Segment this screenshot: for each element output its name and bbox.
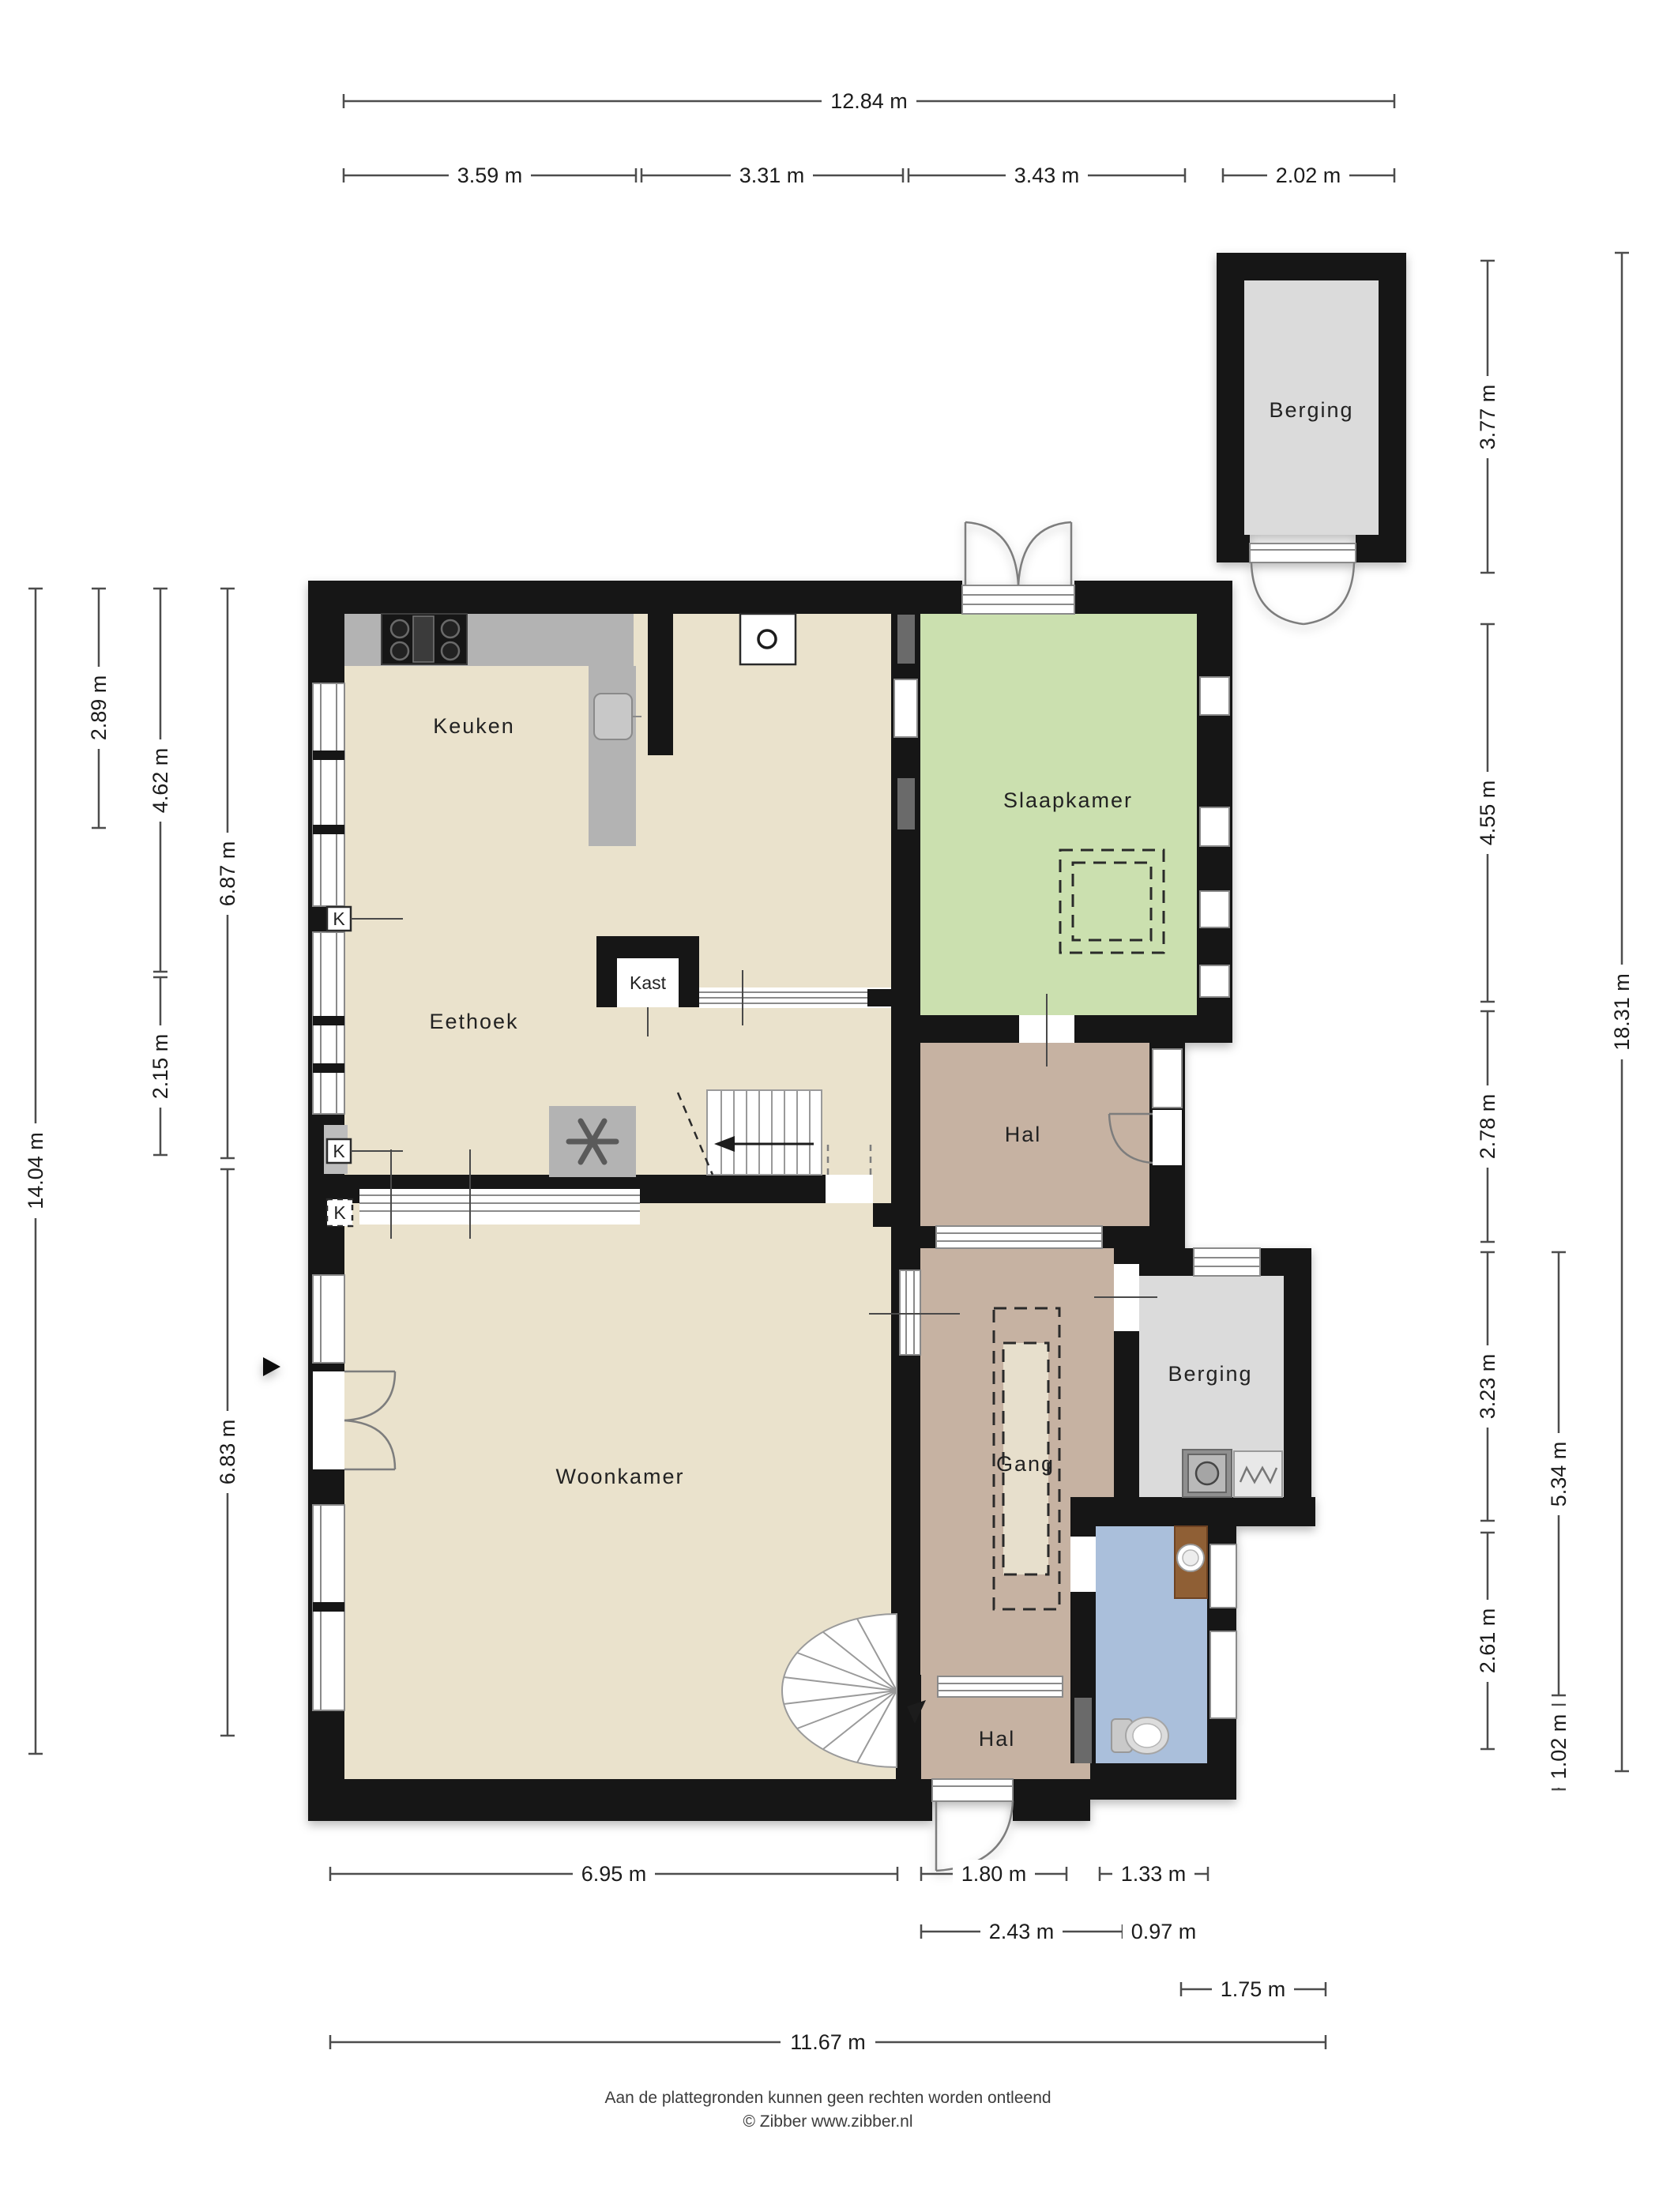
basin-icon — [1175, 1526, 1207, 1598]
toilet-icon — [1112, 1717, 1168, 1754]
svg-text:1.75 m: 1.75 m — [1221, 1977, 1286, 2001]
room-label-keuken: Keuken — [433, 714, 515, 738]
dim-right-seg: 3.77 m — [1475, 261, 1502, 573]
floor-slaapkamer — [920, 614, 1197, 1015]
dim-top-total: 12.84 m — [344, 87, 1394, 114]
k-marker-label: K — [333, 908, 345, 929]
dim-bottom-seg: 1.75 m — [1181, 1975, 1326, 2002]
svg-text:3.59 m: 3.59 m — [457, 164, 523, 187]
svg-text:2.89 m: 2.89 m — [87, 675, 111, 741]
svg-text:1.02 m: 1.02 m — [1547, 1714, 1571, 1780]
dim-left-total: 14.04 m — [23, 589, 50, 1754]
svg-text:14.04 m: 14.04 m — [24, 1132, 47, 1209]
k-marker-label: K — [333, 1141, 345, 1161]
window — [1210, 1544, 1236, 1608]
svg-text:1.33 m: 1.33 m — [1121, 1862, 1187, 1886]
boiler-icon — [740, 614, 796, 664]
front-door — [932, 1779, 1013, 1871]
dim-bottom-seg: 2.43 m — [921, 1917, 1123, 1944]
dim-left-seg: 2.15 m — [148, 977, 175, 1155]
room-label-eethoek: Eethoek — [429, 1010, 518, 1033]
room-label-gang: Gang — [996, 1452, 1055, 1476]
svg-text:1.80 m: 1.80 m — [961, 1862, 1027, 1886]
dim-top-seg: 3.59 m — [344, 161, 636, 188]
room-label-hal-onder: Hal — [979, 1727, 1016, 1751]
svg-text:2.78 m: 2.78 m — [1476, 1094, 1499, 1160]
plan: K K K Keuken Eethoek Woonkamer Slaapkame… — [263, 253, 1406, 1871]
room-label-berging-rechts: Berging — [1168, 1362, 1252, 1386]
svg-text:3.31 m: 3.31 m — [739, 164, 805, 187]
dim-bottom-total: 11.67 m — [330, 2028, 1326, 2055]
dim-top-seg: 2.02 m — [1223, 161, 1394, 188]
glass-partition — [936, 1226, 1102, 1248]
svg-text:3.77 m: 3.77 m — [1476, 385, 1499, 450]
room-label-berging-boven: Berging — [1269, 398, 1353, 422]
window — [1210, 1631, 1236, 1718]
svg-text:6.95 m: 6.95 m — [581, 1862, 647, 1886]
wall-niche — [1074, 1698, 1092, 1763]
dim-top-seg: 3.43 m — [908, 161, 1185, 188]
dim-bottom-seg: 6.95 m — [330, 1860, 897, 1887]
footer: Aan de plattegronden kunnen geen rechten… — [604, 2089, 1051, 2131]
window — [1200, 807, 1229, 846]
door-opening — [1070, 1537, 1096, 1592]
fireplace-icon — [549, 1106, 636, 1177]
room-label-kast: Kast — [630, 972, 667, 993]
dim-top-seg: 3.31 m — [641, 161, 903, 188]
svg-text:3.43 m: 3.43 m — [1014, 164, 1080, 187]
washer-icon — [1183, 1450, 1232, 1497]
room-label-woonkamer: Woonkamer — [555, 1465, 684, 1488]
dim-left-seg: 6.87 m — [215, 589, 242, 1158]
dim-bottom-seg: 1.80 m — [921, 1860, 1066, 1887]
k-marker: K — [327, 1199, 352, 1226]
dim-right-seg: 2.61 m — [1475, 1533, 1502, 1749]
svg-text:18.31 m: 18.31 m — [1610, 973, 1634, 1051]
svg-text:2.43 m: 2.43 m — [989, 1920, 1055, 1943]
dim-left-seg: 4.62 m — [148, 589, 175, 972]
svg-text:6.87 m: 6.87 m — [216, 841, 239, 907]
k-marker-label: K — [333, 1202, 346, 1223]
dim-bottom-seg: 0.97 m — [1123, 1917, 1205, 1944]
window — [894, 679, 917, 737]
window — [1200, 677, 1229, 715]
svg-text:0.97 m: 0.97 m — [1131, 1920, 1197, 1943]
dim-right-seg: 1.02 m — [1546, 1705, 1573, 1789]
wall-niche — [897, 778, 915, 829]
window — [313, 932, 344, 1114]
glass-partition — [938, 1676, 1063, 1697]
window — [313, 683, 344, 906]
dim-right-seg: 4.55 m — [1475, 624, 1502, 1002]
svg-text:4.62 m: 4.62 m — [149, 748, 172, 814]
dim-right-seg: 2.78 m — [1475, 1011, 1502, 1242]
svg-text:4.55 m: 4.55 m — [1476, 781, 1499, 846]
svg-text:2.15 m: 2.15 m — [149, 1034, 172, 1100]
window — [313, 1505, 344, 1710]
wall-niche — [897, 615, 915, 664]
dim-left-seg: 6.83 m — [215, 1169, 242, 1736]
window — [1194, 1248, 1260, 1276]
stove-icon — [382, 614, 467, 664]
window — [1200, 965, 1229, 997]
svg-text:11.67 m: 11.67 m — [790, 2030, 866, 2054]
window — [1153, 1049, 1182, 1108]
svg-text:2.02 m: 2.02 m — [1276, 164, 1341, 187]
svg-text:2.61 m: 2.61 m — [1476, 1608, 1499, 1674]
footer-disclaimer: Aan de plattegronden kunnen geen rechten… — [604, 2089, 1051, 2107]
svg-text:6.83 m: 6.83 m — [216, 1420, 239, 1485]
entrance-double-door — [962, 522, 1074, 614]
garage-double-door — [1250, 544, 1356, 624]
window — [1200, 891, 1229, 927]
dim-bottom-seg: 1.33 m — [1100, 1860, 1208, 1887]
footer-credit: © Zibber www.zibber.nl — [743, 2112, 912, 2131]
floorplan-canvas: K K K Keuken Eethoek Woonkamer Slaapkame… — [0, 0, 1659, 2212]
svg-text:5.34 m: 5.34 m — [1547, 1442, 1571, 1507]
dim-right-seg: 5.34 m — [1546, 1252, 1573, 1695]
dim-right-total: 18.31 m — [1609, 253, 1636, 1771]
room-label-hal-boven: Hal — [1005, 1123, 1042, 1146]
window — [313, 1275, 344, 1363]
svg-text:12.84 m: 12.84 m — [830, 89, 908, 113]
room-label-slaapkamer: Slaapkamer — [1003, 788, 1133, 812]
camera-marker — [263, 1357, 280, 1376]
svg-text:3.23 m: 3.23 m — [1476, 1354, 1499, 1420]
laundry-basket-icon — [1234, 1451, 1282, 1497]
dim-left-seg: 2.89 m — [86, 589, 113, 828]
dim-right-seg: 3.23 m — [1475, 1252, 1502, 1521]
